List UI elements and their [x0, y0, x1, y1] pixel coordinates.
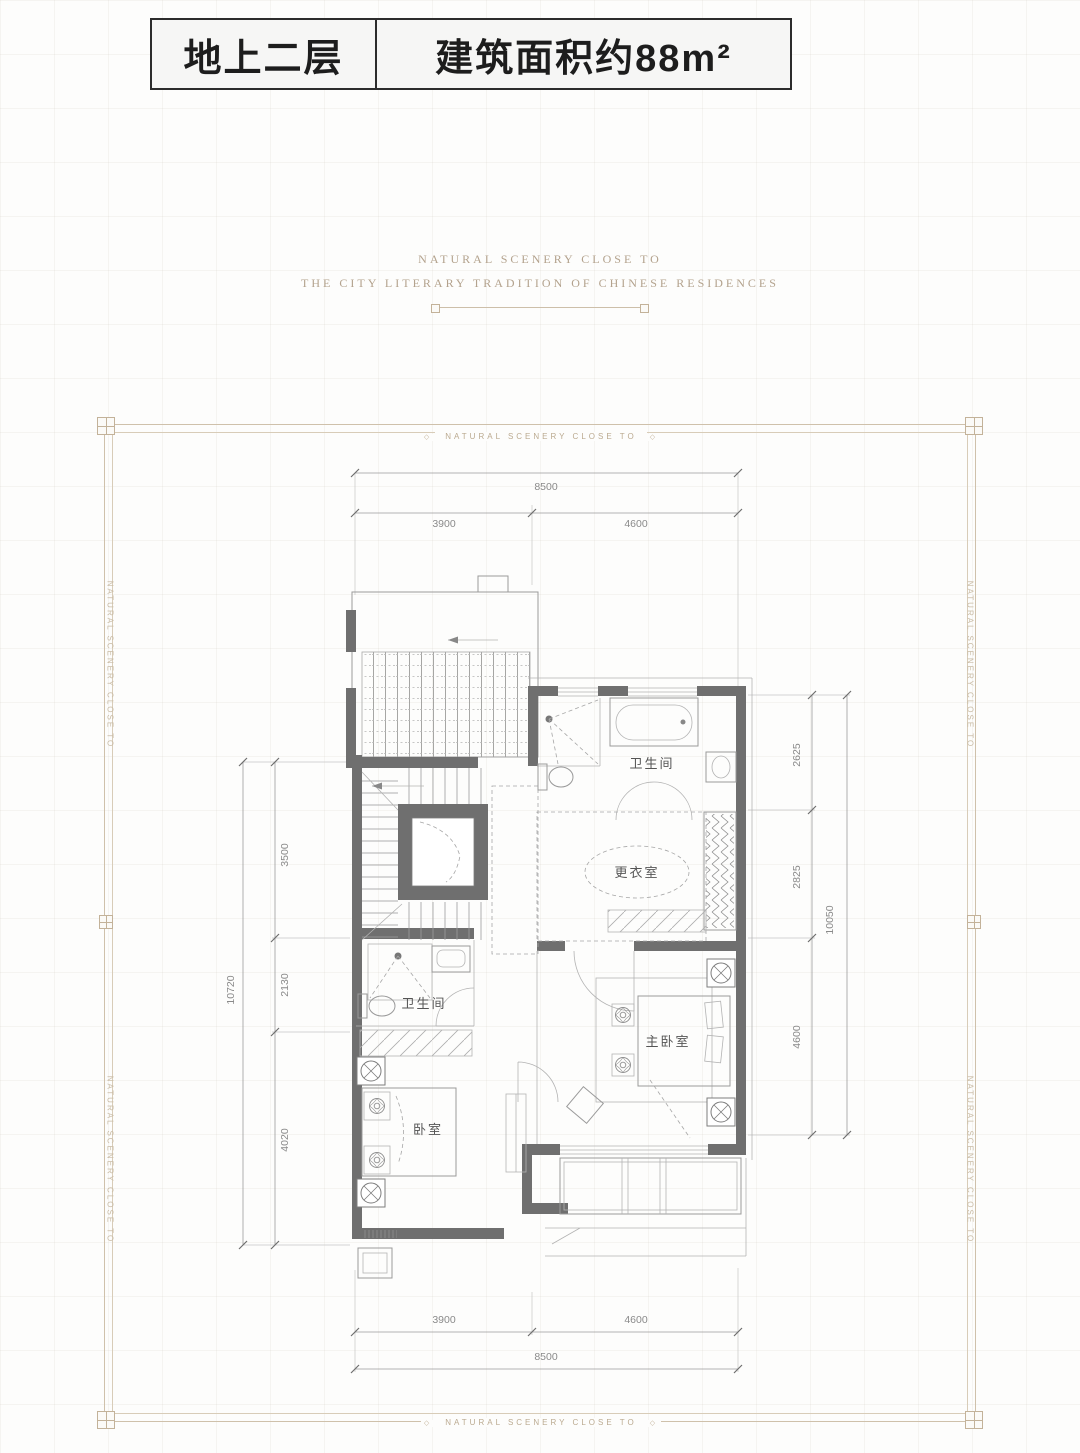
dim-bottom-total: 8500 [534, 1351, 558, 1363]
column-symbol-icon [357, 1057, 385, 1085]
master-bedroom: 主卧室 [567, 951, 735, 1138]
tagline-rule [434, 307, 646, 308]
room-label-bedroom: 卧室 [413, 1122, 443, 1137]
dimension-lines [239, 469, 851, 1373]
dim-left-seg1: 3500 [279, 843, 291, 867]
frame-border-text-right-lower: NATURAL SCENERY CLOSE TO [966, 1075, 975, 1245]
title-block: 地上二层 建筑面积约88m² [150, 18, 792, 90]
dim-top-seg2: 4600 [624, 518, 648, 530]
pillow [705, 1035, 724, 1063]
room-label-master: 主卧室 [645, 1034, 690, 1049]
direction-arrow-icon [448, 637, 458, 644]
dimension-extension-lines [243, 473, 850, 1372]
room-label-bath-lower: 卫生间 [401, 996, 446, 1011]
floor-plan-page: { "header": { "floor_label": "地上二层", "ar… [0, 0, 1080, 1453]
bathroom-lower: 卫生间 [356, 940, 474, 1026]
lamp-icon [370, 1099, 385, 1114]
dim-right-seg2: 2825 [791, 865, 803, 889]
bathtub-drain-icon [681, 720, 686, 725]
closet-hatch [608, 910, 706, 932]
dim-top-seg1: 3900 [432, 518, 456, 530]
dim-left-seg2: 2130 [279, 973, 291, 997]
frame-border-text-left-lower: NATURAL SCENERY CLOSE TO [106, 1075, 115, 1245]
column-symbol-icon [707, 959, 735, 987]
dim-bottom-seg2: 4600 [624, 1314, 648, 1326]
floor-label: 地上二层 [152, 20, 377, 88]
balcony [545, 1158, 746, 1256]
tagline-line2: THE CITY LITERARY TRADITION OF CHINESE R… [0, 276, 1080, 291]
roof-trellis [352, 576, 538, 757]
toilet [358, 994, 395, 1018]
pillow [705, 1001, 724, 1029]
washbasin [432, 946, 470, 972]
room-label-bath-upper: 卫生间 [629, 756, 674, 771]
frame-border-text-right-upper: NATURAL SCENERY CLOSE TO [966, 580, 975, 750]
room-label-dressing: 更衣室 [614, 865, 659, 880]
door-arc [518, 1062, 558, 1102]
dim-right-total: 10050 [824, 905, 836, 934]
dim-top-total: 8500 [534, 481, 558, 493]
frame-midside-icon [967, 915, 981, 929]
ornament-square-icon [640, 304, 649, 313]
lamp-icon [616, 1058, 631, 1073]
terrace-box [358, 1248, 392, 1278]
frame-border-text-bottom: ◇NATURAL SCENERY CLOSE TO◇ [105, 1418, 977, 1427]
staircase [362, 768, 488, 940]
dressing-room: 更衣室 [537, 812, 736, 941]
frame-border-text-left-upper: NATURAL SCENERY CLOSE TO [106, 580, 115, 750]
dim-right-seg3: 4600 [791, 1025, 803, 1049]
washbasin [706, 752, 736, 782]
chair [567, 1087, 604, 1124]
area-label: 建筑面积约88m² [377, 20, 790, 88]
tagline: NATURAL SCENERY CLOSE TO THE CITY LITERA… [0, 252, 1080, 308]
door-arc [574, 951, 634, 1011]
lamp-icon [370, 1153, 385, 1168]
corridor [492, 786, 538, 1144]
shower [537, 698, 600, 766]
nightstand [364, 1092, 390, 1120]
floor-plan: 8500 3900 4600 3900 4600 8500 3500 2130 … [220, 460, 900, 1395]
column-symbol-icon [707, 1098, 735, 1126]
frame-midside-icon [99, 915, 113, 929]
column-symbol-icon [357, 1179, 385, 1207]
closet-hatch [360, 1030, 472, 1056]
dim-right-seg1: 2625 [791, 743, 803, 767]
dim-left-total: 10720 [225, 975, 237, 1004]
ornament-square-icon [431, 304, 440, 313]
window-hatch [363, 1230, 397, 1238]
bathroom-upper: 卫生间 [537, 698, 736, 820]
toilet [538, 764, 573, 790]
double-door-arc [616, 782, 692, 820]
frame-border-text-top: ◇NATURAL SCENERY CLOSE TO◇ [105, 432, 977, 441]
dim-bottom-seg1: 3900 [432, 1314, 456, 1326]
shower [368, 944, 432, 1000]
tagline-line1: NATURAL SCENERY CLOSE TO [0, 252, 1080, 267]
dim-left-seg3: 4020 [279, 1128, 291, 1152]
nightstand [364, 1146, 390, 1174]
